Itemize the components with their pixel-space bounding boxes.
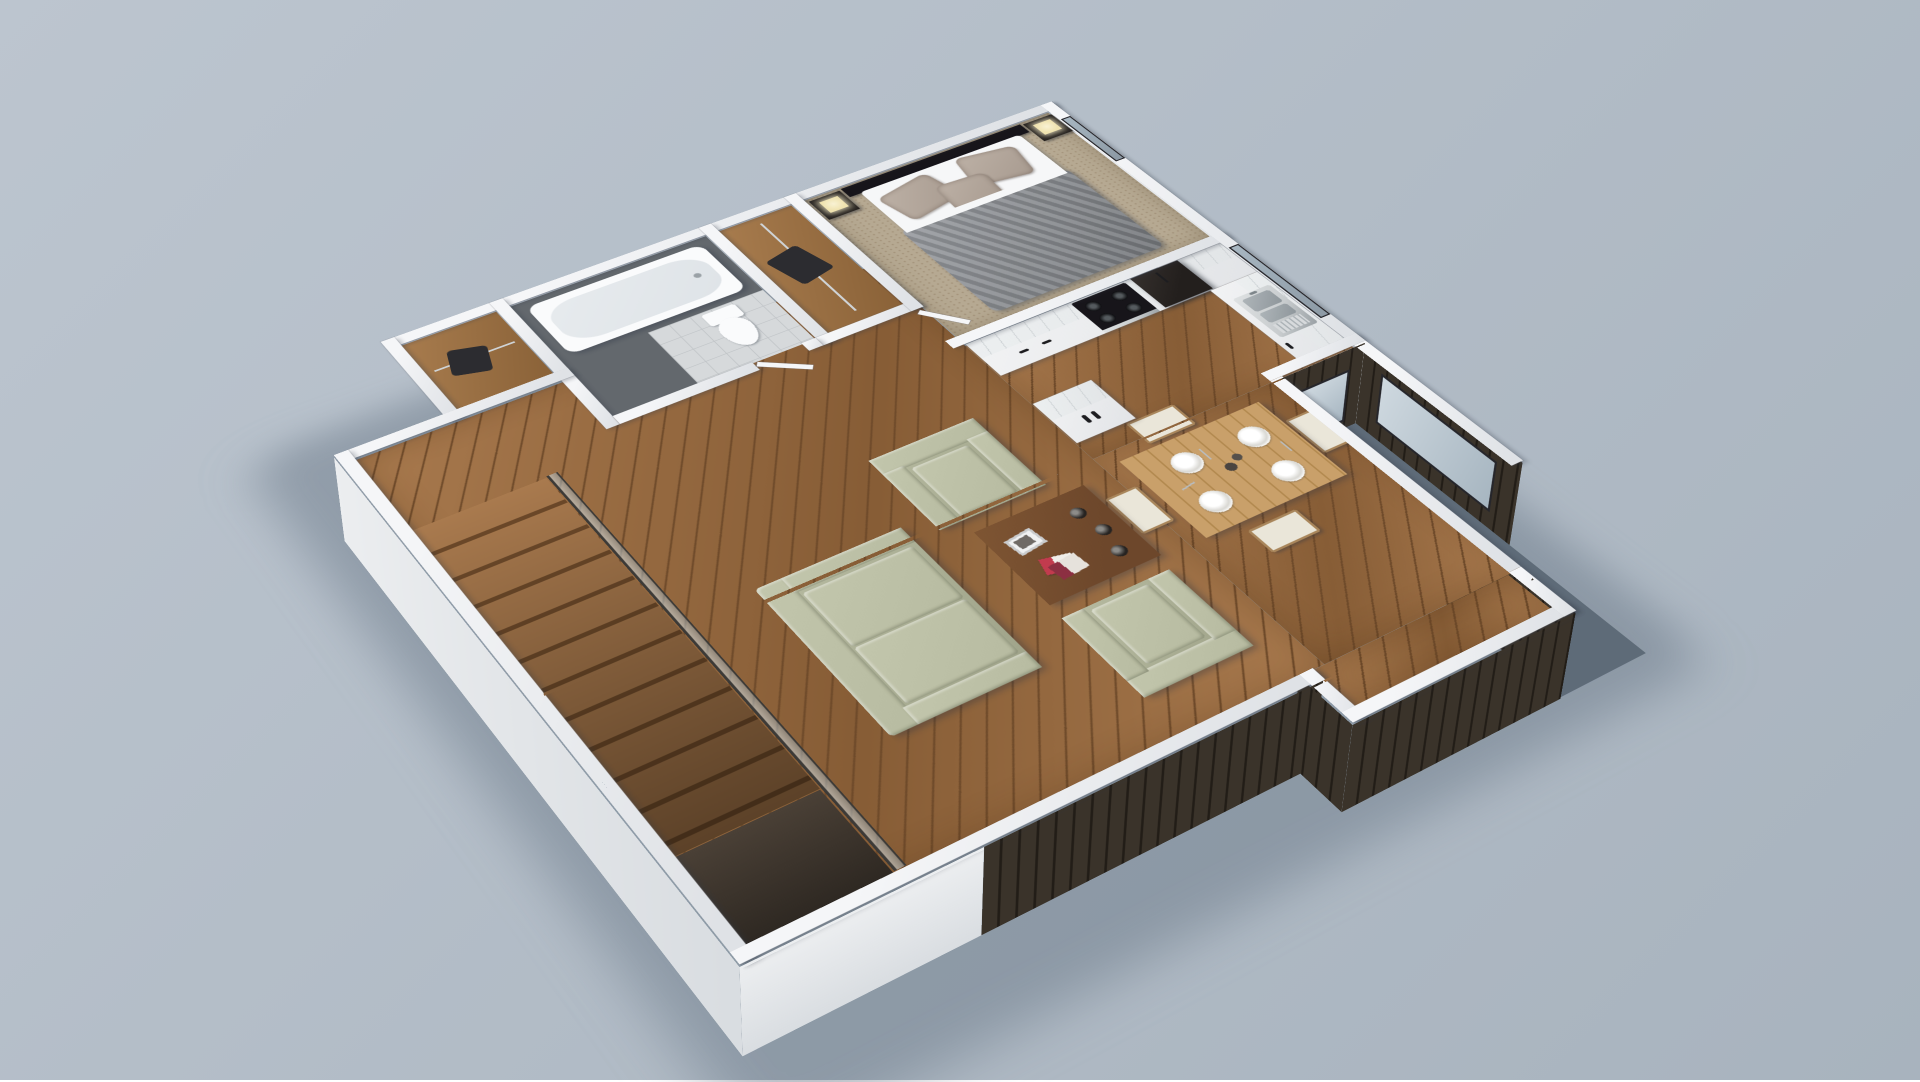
wall-porch-east — [1354, 340, 1523, 465]
photo-frame — [1004, 528, 1048, 556]
candle-holder — [1230, 452, 1245, 461]
decor-bowl — [1092, 522, 1116, 537]
photo — [1013, 535, 1036, 550]
apartment-model — [274, 98, 1680, 1014]
plate-setting — [1231, 423, 1278, 452]
floor-plan-render — [0, 0, 1920, 1080]
decor-bowl — [1107, 543, 1131, 559]
cutlery — [1182, 482, 1195, 491]
burner — [1122, 301, 1145, 314]
burner — [1108, 289, 1131, 302]
plate-setting — [1192, 486, 1240, 516]
burner — [1082, 300, 1105, 313]
camera-viewport — [0, 0, 1920, 1080]
burner — [1096, 311, 1119, 325]
cutlery — [1280, 441, 1293, 451]
candle-holder — [1222, 461, 1240, 472]
plate-setting — [1264, 456, 1311, 485]
decor-bowl — [1066, 506, 1090, 521]
